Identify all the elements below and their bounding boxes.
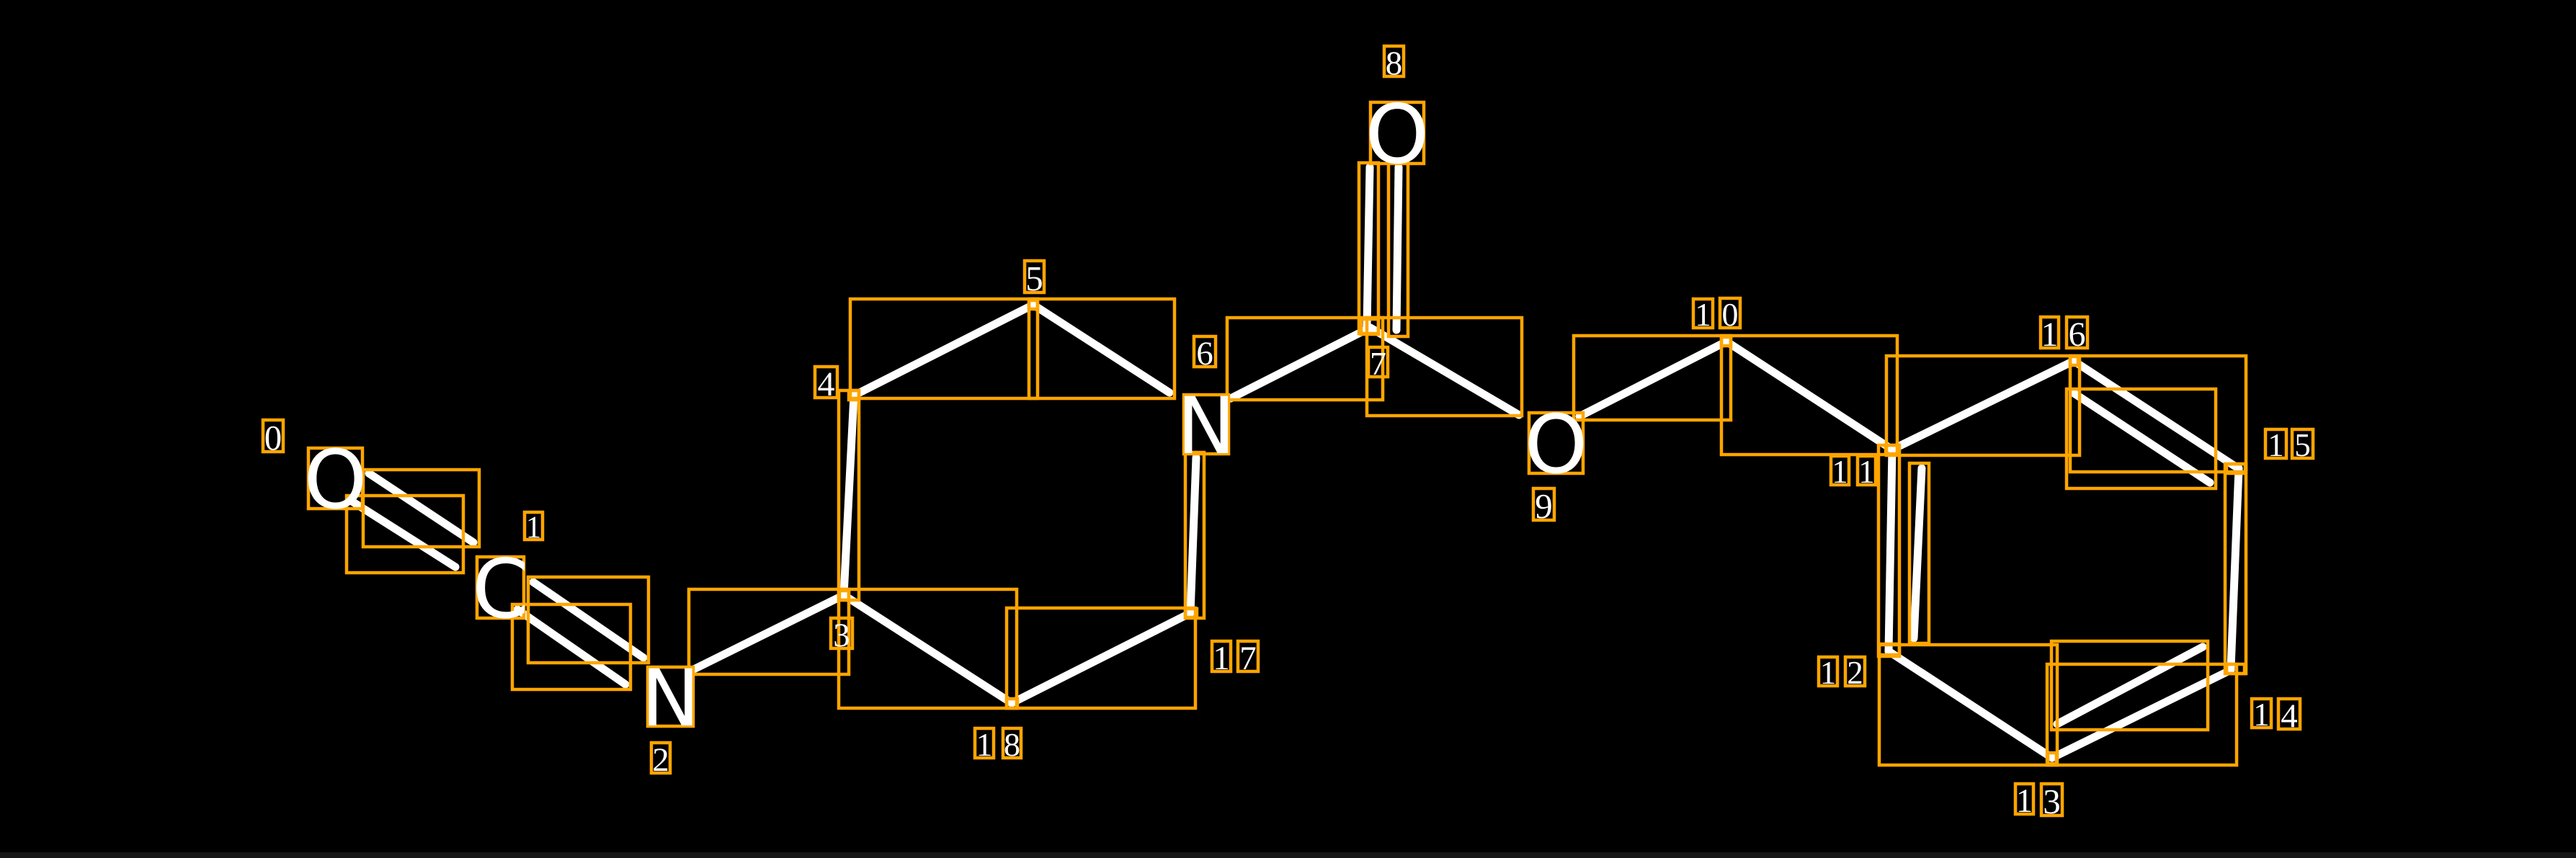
atom-symbol-8: O xyxy=(1365,87,1430,182)
index-digit-12-d1: 2 xyxy=(1847,655,1863,691)
index-digit-10-d0: 1 xyxy=(1695,297,1711,333)
index-digit-3-d0: 3 xyxy=(833,617,850,654)
index-digit-13-d0: 1 xyxy=(2016,782,2033,820)
atom-symbol-1: C xyxy=(472,542,529,637)
index-digit-5-d0: 5 xyxy=(1025,259,1043,298)
index-digit-1-d0: 1 xyxy=(526,511,542,545)
bond-line-7-8 xyxy=(1367,167,1370,326)
atom-symbol-0: O xyxy=(303,434,367,527)
bond-line-7-8-inner xyxy=(1396,167,1399,330)
index-digit-17-d1: 7 xyxy=(1239,640,1257,677)
index-digit-16-d0: 1 xyxy=(2041,316,2059,354)
index-digit-17-d0: 1 xyxy=(1213,640,1230,677)
index-digit-0-d0: 0 xyxy=(264,418,282,457)
index-digit-12-d0: 1 xyxy=(1820,655,1837,691)
index-digit-14-d1: 4 xyxy=(2281,697,2298,735)
index-digit-4-d0: 4 xyxy=(818,365,835,403)
index-digit-14-d0: 1 xyxy=(2253,697,2270,733)
index-digit-16-d1: 6 xyxy=(2069,316,2086,354)
index-digit-6-d0: 6 xyxy=(1196,335,1213,372)
index-digit-15-d0: 1 xyxy=(2268,427,2284,463)
molecule-annotation-svg: OCNNOO0123456789101112131415161718 xyxy=(0,0,2576,858)
atom-symbol-9: O xyxy=(1524,398,1587,492)
molecule-annotation-canvas: OCNNOO0123456789101112131415161718 xyxy=(0,0,2576,858)
index-digit-15-d1: 5 xyxy=(2294,427,2311,463)
index-digit-18-d1: 8 xyxy=(1004,726,1020,763)
bond-line-12-11 xyxy=(1889,450,1892,651)
index-digit-11-d0: 1 xyxy=(1832,454,1848,490)
atom-symbol-6: N xyxy=(1177,380,1236,472)
index-digit-7-d0: 7 xyxy=(1370,345,1386,382)
index-digit-13-d1: 3 xyxy=(2043,782,2061,821)
atom-symbol-2: N xyxy=(641,653,700,744)
index-digit-2-d0: 2 xyxy=(652,741,669,779)
index-digit-8-d0: 8 xyxy=(1386,45,1403,82)
index-digit-9-d0: 9 xyxy=(1535,486,1553,526)
index-digit-18-d0: 1 xyxy=(976,726,993,763)
index-digit-11-d1: 1 xyxy=(1858,454,1875,490)
index-digit-10-d1: 0 xyxy=(1722,296,1739,333)
bottom-edge-strip xyxy=(0,852,2576,858)
